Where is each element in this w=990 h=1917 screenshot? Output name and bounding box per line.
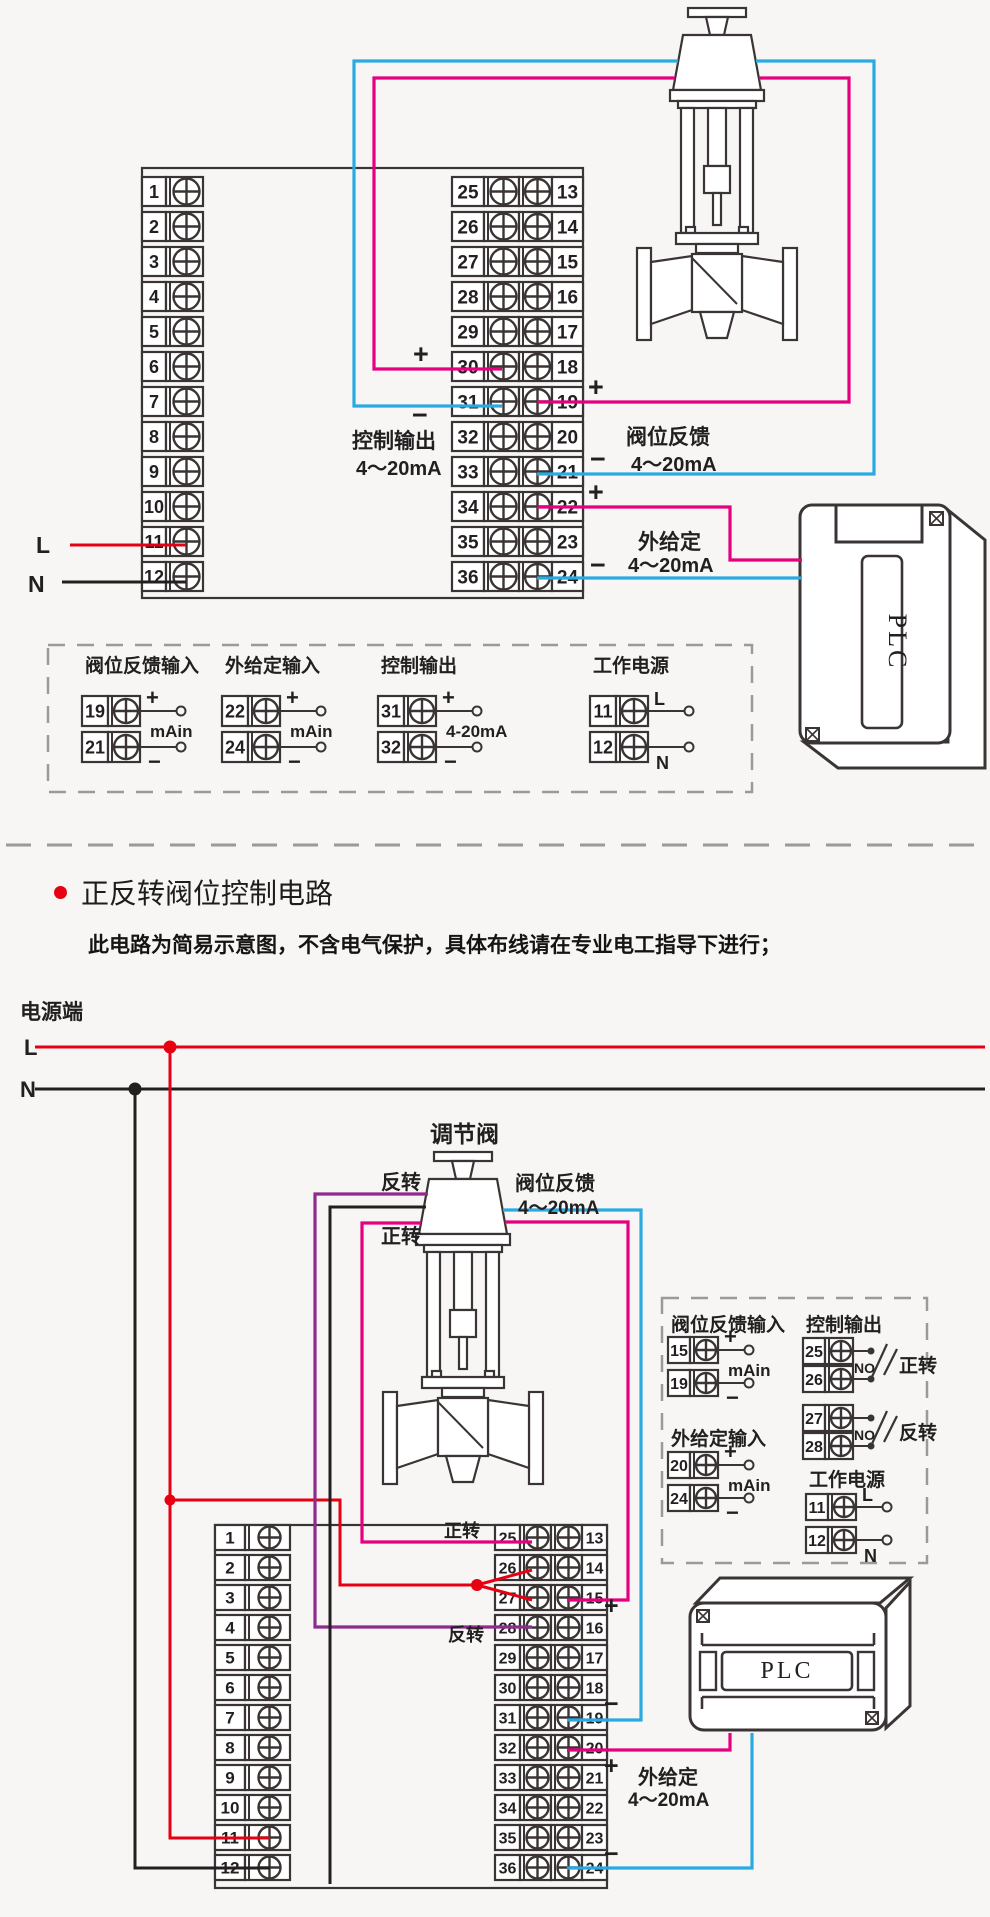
svg-text:mAin: mAin: [728, 1361, 771, 1380]
svg-text:+: +: [146, 685, 159, 710]
svg-text:N: N: [864, 1546, 877, 1566]
svg-text:1: 1: [225, 1529, 234, 1548]
svg-text:−: −: [590, 550, 606, 580]
svg-text:3: 3: [225, 1589, 234, 1608]
svg-text:19: 19: [670, 1376, 688, 1393]
svg-text:−: −: [412, 400, 428, 430]
svg-text:11: 11: [144, 532, 163, 552]
svg-text:4～20mA: 4～20mA: [356, 458, 442, 480]
svg-text:32: 32: [381, 737, 401, 757]
svg-text:10: 10: [221, 1799, 240, 1818]
svg-text:26: 26: [805, 1372, 823, 1389]
terminal-block: 2513261427152816291730183119322033213422…: [495, 1525, 607, 1880]
junction-dot: [165, 1495, 176, 1506]
svg-text:31: 31: [457, 392, 479, 413]
junction-dot: [471, 1579, 483, 1591]
svg-text:N: N: [20, 1077, 36, 1102]
svg-text:外给定输入: 外给定输入: [671, 1427, 766, 1450]
svg-text:31: 31: [381, 701, 401, 721]
svg-text:25: 25: [457, 182, 479, 203]
svg-text:30: 30: [499, 1680, 517, 1697]
legend-group: 外给定输入20+24−mAin: [668, 1427, 771, 1525]
svg-text:26: 26: [457, 217, 478, 238]
svg-text:−: −: [604, 1690, 619, 1718]
svg-text:25: 25: [805, 1344, 823, 1361]
svg-text:4: 4: [225, 1619, 235, 1638]
svg-text:N: N: [656, 753, 669, 773]
svg-text:6: 6: [225, 1679, 234, 1698]
svg-text:4～20mA: 4～20mA: [628, 555, 714, 577]
svg-text:7: 7: [149, 392, 159, 412]
section2-heading: 正反转阀位控制电路: [54, 872, 333, 912]
svg-text:27: 27: [805, 1411, 823, 1428]
svg-text:21: 21: [586, 1770, 604, 1787]
svg-text:32: 32: [499, 1740, 517, 1757]
svg-text:6: 6: [149, 357, 159, 377]
svg-text:4～20mA: 4～20mA: [631, 454, 717, 476]
legend-group: 阀位反馈输入19+21−mAin: [82, 654, 199, 774]
svg-text:8: 8: [149, 427, 159, 447]
svg-text:反转: 反转: [899, 1421, 937, 1444]
control-valve-drawing: [637, 8, 797, 340]
svg-text:11: 11: [809, 1500, 826, 1517]
svg-text:36: 36: [499, 1860, 517, 1877]
svg-text:+: +: [442, 685, 455, 710]
svg-text:28: 28: [457, 287, 478, 308]
svg-text:15: 15: [557, 252, 579, 273]
svg-text:20: 20: [557, 427, 578, 448]
svg-text:+: +: [413, 339, 429, 369]
svg-text:18: 18: [557, 357, 578, 378]
svg-text:阀位反馈输入: 阀位反馈输入: [85, 654, 199, 677]
svg-text:28: 28: [805, 1439, 823, 1456]
svg-text:L: L: [862, 1485, 873, 1505]
svg-text:外给定: 外给定: [638, 1765, 698, 1789]
svg-text:控制输出: 控制输出: [352, 429, 436, 453]
plc-module: PLC: [690, 1578, 910, 1730]
bullet-icon: [54, 886, 67, 899]
legend-group: 阀位反馈输入15+19−mAin: [668, 1313, 785, 1410]
svg-text:28: 28: [499, 1620, 517, 1637]
svg-text:外给定: 外给定: [638, 530, 701, 554]
svg-text:反转: 反转: [381, 1170, 421, 1194]
svg-text:17: 17: [557, 322, 578, 343]
svg-text:控制输出: 控制输出: [806, 1313, 882, 1336]
svg-text:24: 24: [225, 737, 245, 757]
svg-text:−: −: [590, 444, 606, 474]
svg-text:mAin: mAin: [150, 722, 193, 741]
svg-text:N: N: [28, 571, 45, 597]
legend-group: 工作电源11L12N: [806, 1468, 892, 1566]
section1-wiring: 1234567891011122513261427152816291730183…: [28, 8, 985, 792]
svg-text:35: 35: [499, 1830, 517, 1847]
svg-text:阀位反馈: 阀位反馈: [515, 1171, 595, 1195]
svg-text:+: +: [588, 372, 604, 402]
svg-text:5: 5: [149, 322, 159, 342]
svg-text:13: 13: [557, 182, 578, 203]
svg-text:4-20mA: 4-20mA: [446, 722, 507, 741]
svg-text:2: 2: [149, 217, 159, 237]
svg-text:L: L: [654, 689, 665, 709]
svg-text:17: 17: [586, 1650, 604, 1667]
plc-module: PLC: [800, 505, 985, 768]
svg-text:1: 1: [149, 182, 159, 202]
terminal-block: 123456789101112: [215, 1525, 290, 1880]
svg-text:电源端: 电源端: [20, 1001, 83, 1024]
svg-text:L: L: [36, 532, 50, 558]
junction-dot: [164, 1041, 177, 1054]
svg-text:33: 33: [499, 1770, 517, 1787]
svg-text:23: 23: [586, 1830, 604, 1847]
section2-heading-text: 正反转阀位控制电路: [81, 872, 333, 912]
svg-text:+: +: [724, 1324, 737, 1349]
svg-text:NO: NO: [854, 1427, 875, 1443]
svg-text:32: 32: [457, 427, 478, 448]
section2-subheading: 此电路为简易示意图，不含电气保护，具体布线请在专业电工指导下进行；: [88, 929, 781, 959]
svg-text:工作电源: 工作电源: [593, 654, 669, 677]
svg-text:23: 23: [557, 532, 578, 553]
svg-text:7: 7: [225, 1709, 234, 1728]
svg-text:调节阀: 调节阀: [430, 1121, 499, 1147]
svg-text:9: 9: [225, 1769, 234, 1788]
svg-text:4: 4: [149, 287, 159, 307]
svg-text:12: 12: [593, 737, 613, 757]
svg-text:22: 22: [225, 701, 245, 721]
svg-text:正转: 正转: [444, 1520, 480, 1541]
svg-text:−: −: [288, 749, 301, 774]
svg-text:25: 25: [499, 1530, 517, 1547]
svg-text:mAin: mAin: [728, 1476, 771, 1495]
svg-text:+: +: [588, 477, 604, 507]
svg-text:NO: NO: [854, 1360, 875, 1376]
section2-wiring: 1234567891011122513261427152816291730183…: [20, 1001, 985, 1888]
svg-text:控制输出: 控制输出: [381, 654, 457, 677]
svg-text:4～20mA: 4～20mA: [628, 1790, 710, 1811]
svg-text:+: +: [724, 1439, 737, 1464]
svg-text:14: 14: [586, 1560, 604, 1577]
svg-text:正转: 正转: [381, 1224, 421, 1248]
svg-text:阀位反馈: 阀位反馈: [626, 425, 710, 449]
svg-text:16: 16: [586, 1620, 604, 1637]
svg-text:mAin: mAin: [290, 722, 333, 741]
svg-text:12: 12: [144, 567, 164, 587]
svg-text:24: 24: [670, 1491, 688, 1508]
svg-text:31: 31: [499, 1710, 517, 1727]
svg-text:22: 22: [586, 1800, 604, 1817]
svg-text:11: 11: [593, 701, 612, 721]
svg-text:14: 14: [557, 217, 579, 238]
terminal-block: 123456789101112: [142, 177, 203, 591]
svg-text:−: −: [726, 1385, 739, 1410]
svg-text:+: +: [604, 1752, 619, 1780]
svg-text:3: 3: [149, 252, 159, 272]
junction-dot: [129, 1083, 142, 1096]
svg-text:16: 16: [557, 287, 578, 308]
svg-text:−: −: [444, 749, 457, 774]
svg-text:正转: 正转: [899, 1354, 937, 1377]
svg-text:8: 8: [225, 1739, 234, 1758]
legend-group: 外给定输入22+24−mAin: [222, 654, 333, 774]
svg-text:18: 18: [586, 1680, 604, 1697]
svg-text:9: 9: [149, 462, 159, 482]
svg-text:10: 10: [144, 497, 164, 517]
svg-text:−: −: [726, 1500, 739, 1525]
svg-text:36: 36: [457, 567, 478, 588]
svg-text:+: +: [286, 685, 299, 710]
terminal-block: 2513261427152816291730183119322033213422…: [452, 177, 583, 591]
svg-text:21: 21: [85, 737, 105, 757]
svg-text:5: 5: [225, 1649, 234, 1668]
svg-text:33: 33: [457, 462, 478, 483]
wire-black: [330, 1207, 426, 1884]
svg-text:34: 34: [499, 1800, 517, 1817]
svg-text:+: +: [604, 1592, 619, 1620]
svg-text:2: 2: [225, 1559, 234, 1578]
svg-text:反转: 反转: [448, 1624, 484, 1645]
svg-text:13: 13: [586, 1530, 604, 1547]
svg-text:−: −: [604, 1840, 619, 1868]
wiring-diagram-page: 1234567891011122513261427152816291730183…: [0, 0, 990, 1917]
svg-text:15: 15: [670, 1343, 688, 1360]
svg-text:外给定输入: 外给定输入: [225, 654, 320, 677]
svg-text:12: 12: [808, 1533, 826, 1550]
svg-text:34: 34: [457, 497, 479, 518]
svg-text:PLC: PLC: [760, 1658, 813, 1684]
svg-text:27: 27: [457, 252, 478, 273]
legend-group-relay: 控制输出2526NO正转2728NO反转: [803, 1313, 937, 1459]
svg-text:35: 35: [457, 532, 479, 553]
svg-text:20: 20: [670, 1458, 688, 1475]
svg-text:4～20mA: 4～20mA: [518, 1198, 600, 1219]
svg-text:PLC: PLC: [883, 614, 912, 671]
legend-group: 工作电源11L12N: [590, 654, 694, 773]
legend-group: 控制输出31+32−4-20mA: [378, 654, 507, 774]
svg-text:工作电源: 工作电源: [809, 1468, 885, 1491]
svg-text:29: 29: [457, 322, 478, 343]
svg-text:29: 29: [499, 1650, 517, 1667]
svg-text:L: L: [24, 1035, 37, 1060]
svg-text:−: −: [148, 749, 161, 774]
svg-text:19: 19: [85, 701, 105, 721]
annotations: +−控制输出4～20mA+−阀位反馈4～20mA+−外给定4～20mALN: [28, 339, 717, 597]
